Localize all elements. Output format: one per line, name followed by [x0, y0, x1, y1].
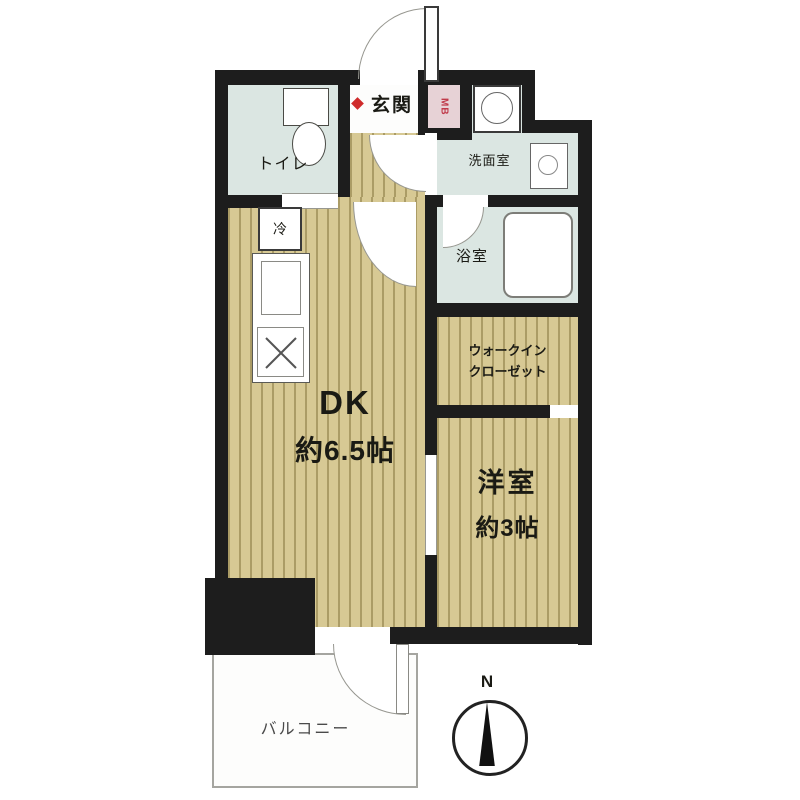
toilet-label: トイレ	[228, 150, 338, 174]
washroom-label: 洗面室	[437, 148, 542, 170]
walk-in-closet-label: ウォークイン クローゼット	[437, 336, 578, 388]
dk-size-label: 約6.5帖	[240, 430, 450, 468]
dk-western-sliding-door	[425, 455, 437, 555]
wic-label-line2: クローゼット	[468, 362, 546, 383]
fridge-label: 冷	[273, 219, 287, 239]
entrance-door-swing-arc	[358, 8, 427, 79]
wall-closet-western	[425, 405, 550, 418]
toilet-tank-icon	[283, 88, 329, 126]
bathroom-label: 浴室	[438, 243, 506, 267]
compass-north-label: N	[472, 670, 502, 694]
balcony-door-leaf-icon	[396, 644, 409, 714]
washroom-doorway-gap	[425, 133, 437, 195]
wall-top-left	[215, 70, 360, 85]
wall-bath-closet	[425, 303, 592, 317]
bathroom-door-gap	[443, 195, 488, 207]
western-room-label: 洋室	[437, 462, 578, 498]
floor-plan: 冷 トイレ 玄関 MB 洗面室 浴室 DK 約6.5帖 ウォークイン クローゼッ…	[0, 0, 800, 800]
wall-left	[215, 70, 228, 578]
meter-box-label: MB	[428, 85, 460, 128]
structural-pillar	[205, 578, 315, 655]
wic-label-line1: ウォークイン	[468, 341, 546, 362]
wall-bottom	[390, 627, 592, 644]
kitchen-sink-icon	[261, 261, 301, 315]
bathtub-icon	[503, 212, 573, 298]
washing-machine-drum-icon	[481, 92, 513, 124]
balcony-label: バルコニー	[238, 714, 373, 740]
western-room-size-label: 約3帖	[437, 508, 578, 542]
fridge-slot: 冷	[258, 207, 302, 251]
entrance-door-leaf-icon	[424, 6, 439, 82]
dk-label: DK	[255, 383, 435, 423]
stove-icon	[257, 327, 304, 377]
wall-toilet-right	[338, 85, 350, 197]
entrance-label: 玄関	[364, 88, 420, 118]
